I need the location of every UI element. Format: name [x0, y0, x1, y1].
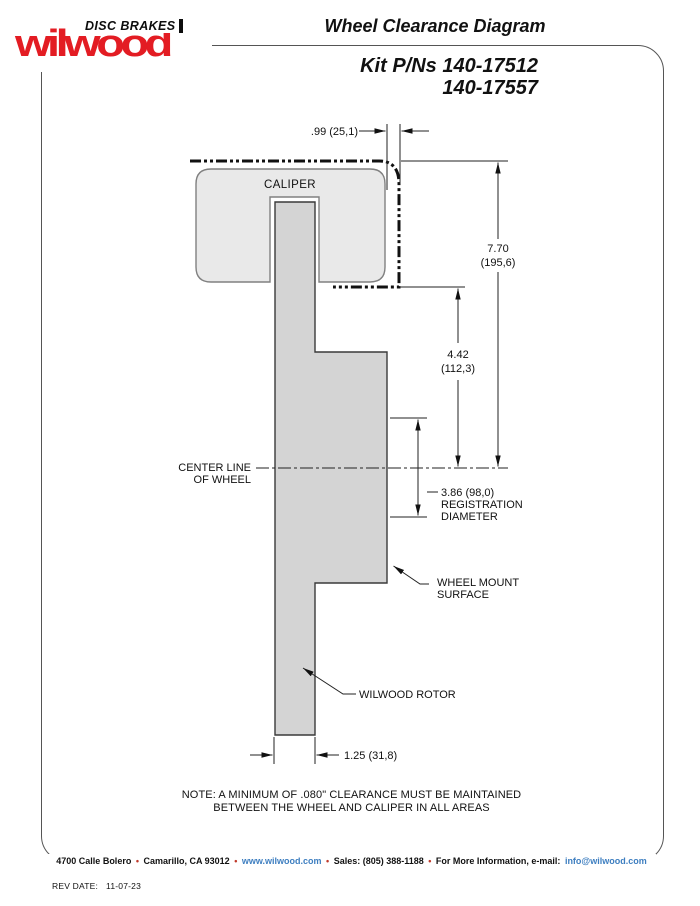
footer-sales-phone: Sales: (805) 388-1188 [334, 854, 424, 868]
note-line-1: NOTE: A MINIMUM OF .080" CLEARANCE MUST … [41, 789, 662, 802]
page: DISC BRAKES wilwood Wheel Clearance Diag… [0, 0, 700, 906]
dim-mid-value: 4.42 [447, 349, 468, 361]
footer-contact-line: 4700 Calle Bolero • Camarillo, CA 93012 … [47, 854, 655, 868]
centerline-label-2: OF WHEEL [194, 474, 251, 486]
footer-address: 4700 Calle Bolero [56, 854, 131, 868]
caliper-label: CALIPER [264, 179, 316, 191]
rotor-label: WILWOOD ROTOR [359, 689, 456, 701]
dim-width-label: 1.25 (31,8) [344, 750, 397, 762]
footer-bullet: • [234, 854, 237, 868]
dim-registration-value: 3.86 (98,0) [441, 487, 494, 499]
note-line-2: BETWEEN THE WHEEL AND CALIPER IN ALL ARE… [41, 802, 662, 815]
rev-date-label: REV DATE: [52, 881, 98, 891]
rev-date: REV DATE:11-07-23 [52, 881, 149, 891]
wheel-mount-label-2: SURFACE [437, 589, 489, 601]
rev-date-value: 11-07-23 [106, 881, 141, 891]
footer-info-text: For More Information, e-mail: [436, 854, 561, 868]
footer-email-link[interactable]: info@wilwood.com [565, 854, 647, 868]
logo-tagline: DISC BRAKES [82, 19, 183, 33]
dim-registration-label-2: REGISTRATION [441, 499, 523, 511]
footer-bullet: • [326, 854, 329, 868]
footer-city: Camarillo, CA 93012 [143, 854, 229, 868]
dim-height-mm: (195,6) [481, 257, 516, 269]
footer-bar: 4700 Calle Bolero • Camarillo, CA 93012 … [41, 854, 662, 868]
wheel-clearance-drawing: CALIPER .99 (25,1) 7.70 (195,6) 4.42 (11… [0, 0, 700, 906]
dim-mid-mm: (112,3) [441, 363, 475, 375]
dim-height-value: 7.70 [487, 243, 508, 255]
clearance-note: NOTE: A MINIMUM OF .080" CLEARANCE MUST … [41, 789, 662, 815]
dim-clearance-label: .99 (25,1) [311, 126, 358, 138]
footer-website-link[interactable]: www.wilwood.com [242, 854, 322, 868]
dim-registration-label-3: DIAMETER [441, 511, 498, 523]
footer-bullet: • [428, 854, 431, 868]
centerline-label-1: CENTER LINE [178, 462, 251, 474]
wilwood-logo: DISC BRAKES wilwood [14, 12, 212, 72]
leader-wheel-mount [394, 566, 430, 584]
wheel-mount-label-1: WHEEL MOUNT [437, 577, 519, 589]
footer-bullet: • [136, 854, 139, 868]
